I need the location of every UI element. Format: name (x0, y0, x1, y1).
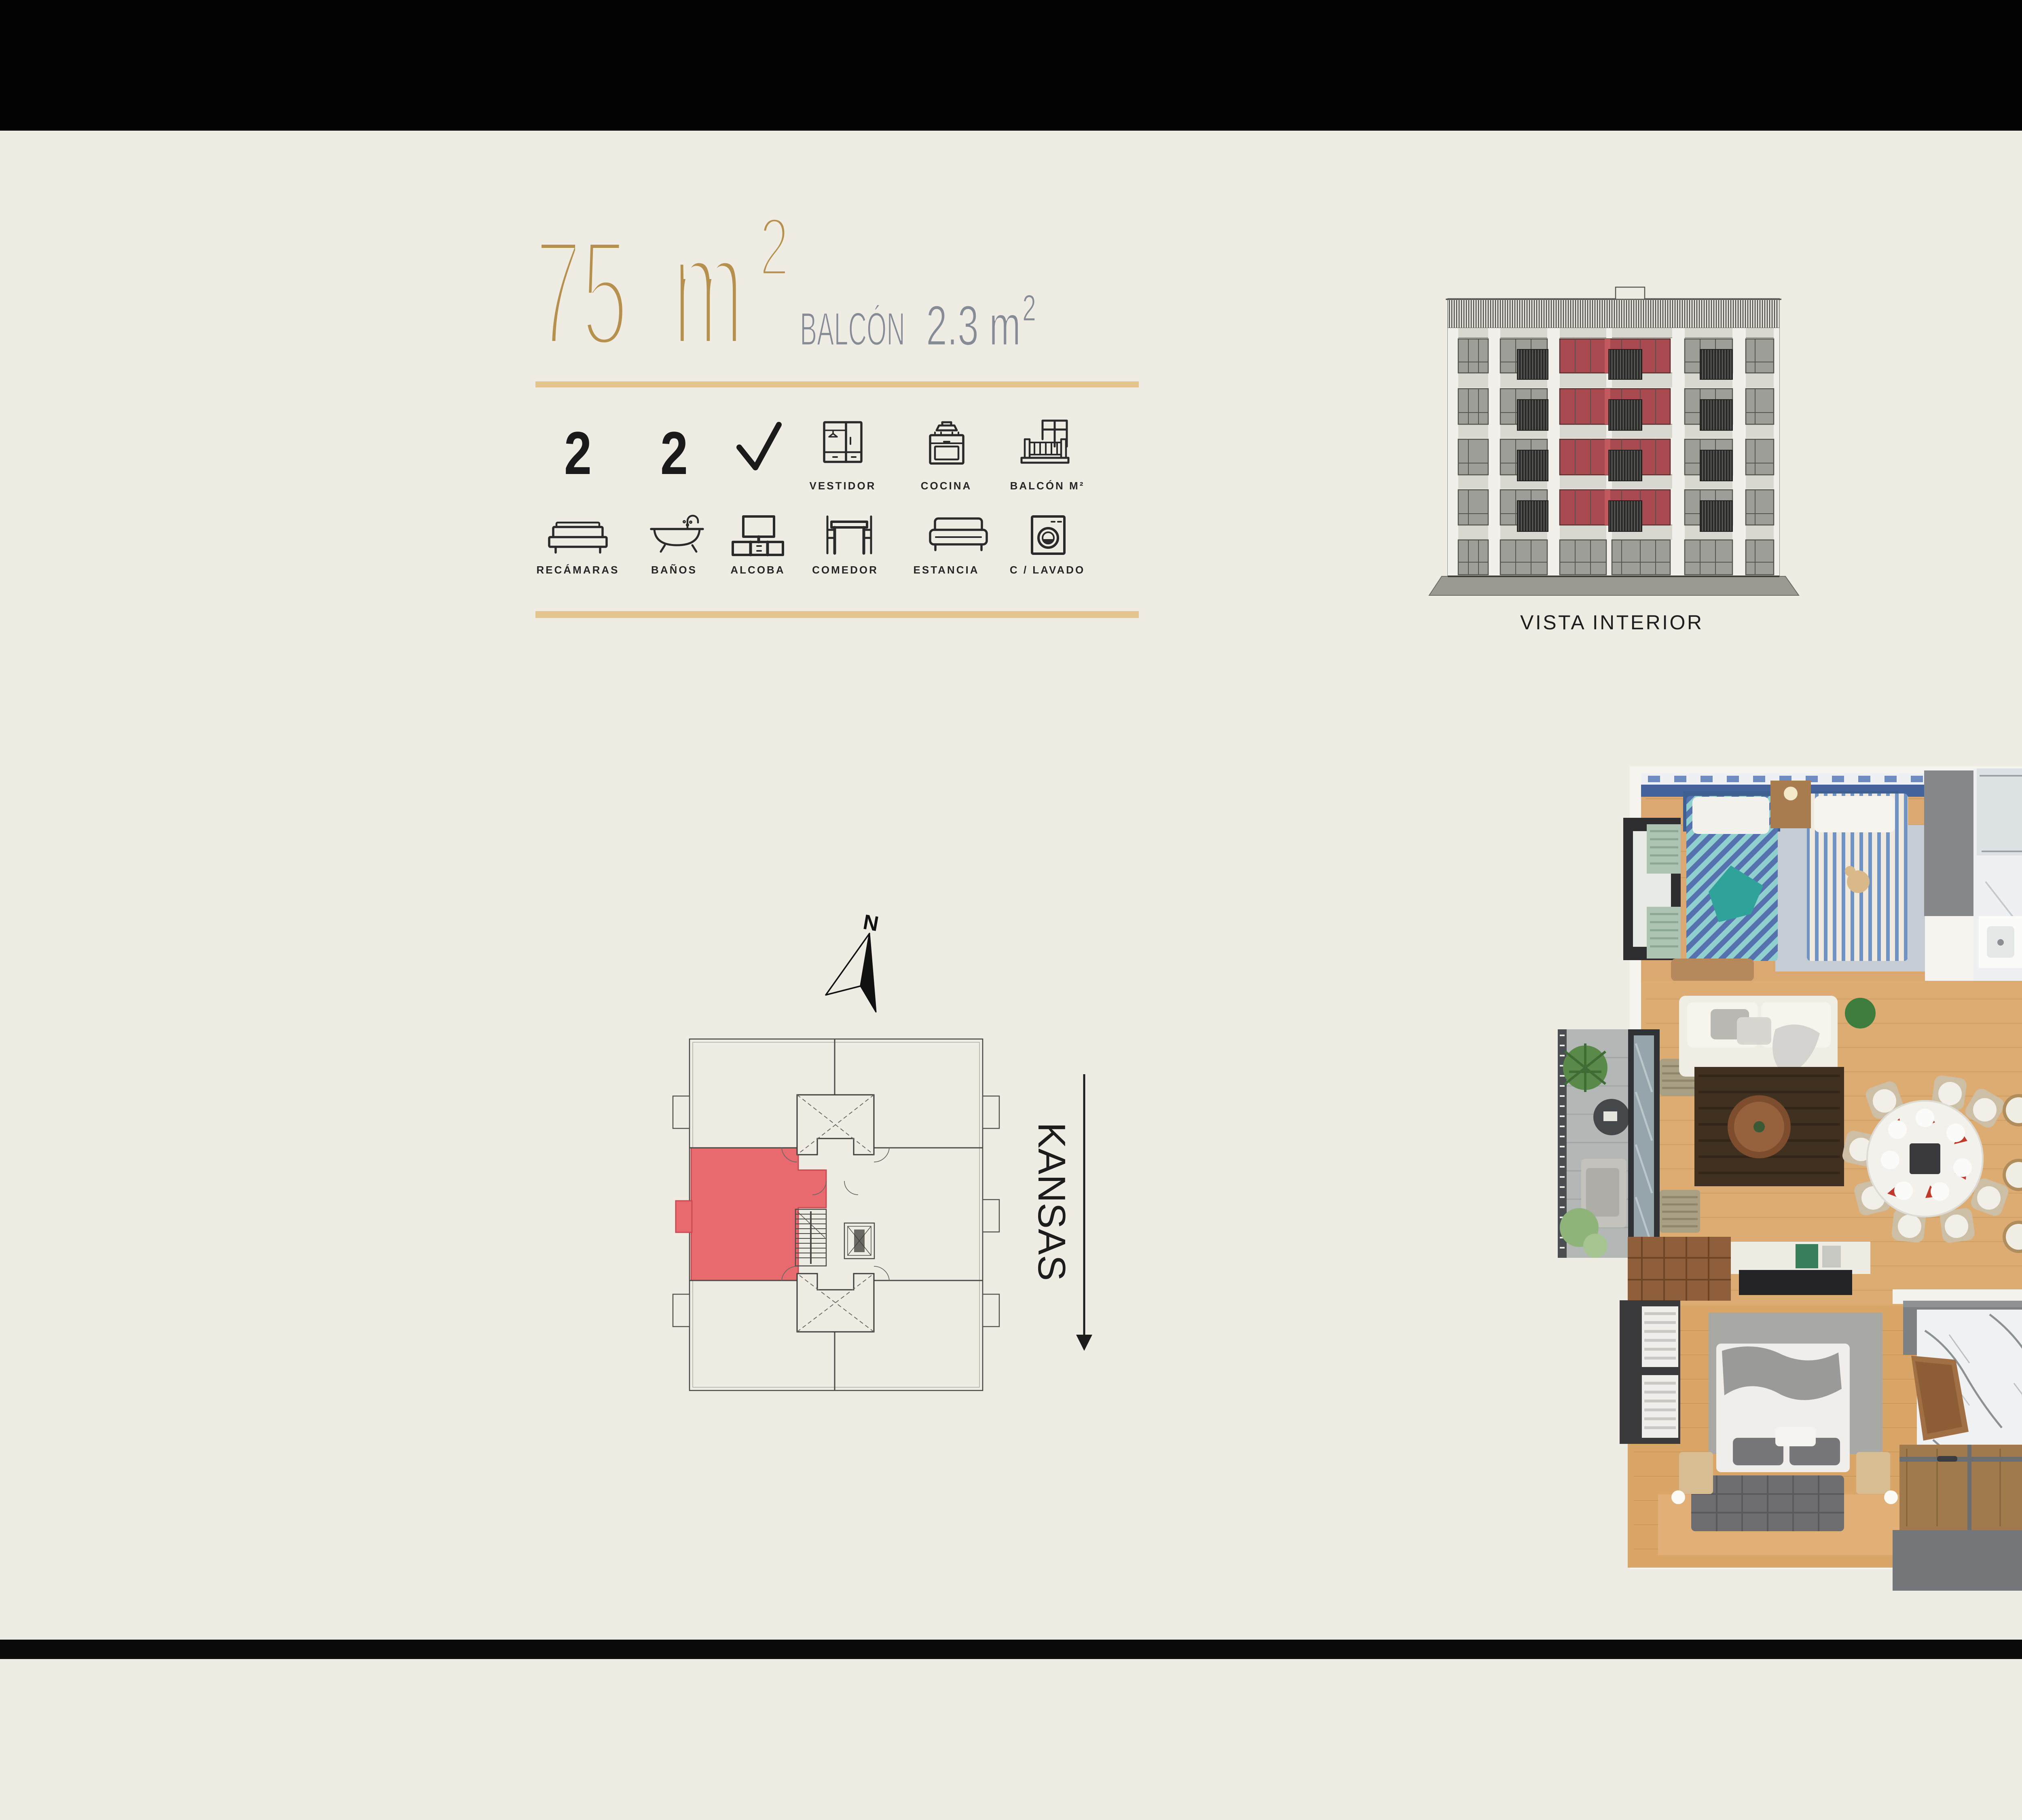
svg-text:2.3 m: 2.3 m (926, 294, 1021, 357)
svg-text:BAÑOS: BAÑOS (651, 564, 697, 576)
svg-text:BALCÓN: BALCÓN (800, 303, 905, 355)
svg-text:2: 2 (1022, 288, 1036, 329)
svg-text:2: 2 (564, 419, 592, 487)
svg-text:VESTIDOR: VESTIDOR (810, 480, 876, 492)
svg-text:2: 2 (660, 419, 688, 487)
svg-text:KANSAS: KANSAS (1030, 1122, 1073, 1286)
svg-text:COMEDOR: COMEDOR (812, 564, 878, 576)
svg-text:2: 2 (759, 201, 789, 293)
svg-text:COCINA: COCINA (921, 480, 972, 492)
svg-text:m: m (673, 200, 744, 379)
svg-text:BALCÓN M²: BALCÓN M² (1010, 480, 1085, 492)
svg-text:75: 75 (535, 208, 628, 377)
svg-text:C / LAVADO: C / LAVADO (1010, 564, 1085, 576)
svg-text:ESTANCIA: ESTANCIA (914, 564, 979, 576)
svg-text:RECÁMARAS: RECÁMARAS (537, 564, 620, 576)
svg-text:ALCOBA: ALCOBA (730, 564, 785, 576)
svg-text:VISTA INTERIOR: VISTA INTERIOR (1520, 611, 1705, 634)
